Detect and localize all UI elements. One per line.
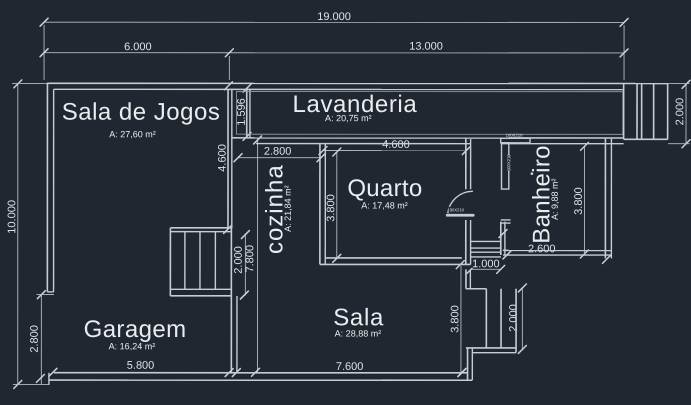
svg-text:10.000: 10.000 [6, 200, 18, 234]
svg-text:A: 9,88 m²: A: 9,88 m² [550, 179, 560, 221]
svg-text:7.600: 7.600 [336, 361, 364, 373]
svg-text:3.800: 3.800 [573, 187, 585, 215]
svg-text:Garagem: Garagem [84, 316, 187, 343]
svg-text:A: 27,60 m²: A: 27,60 m² [109, 129, 156, 139]
svg-text:Sala: Sala [333, 304, 384, 331]
svg-text:3.800: 3.800 [449, 305, 461, 333]
svg-text:4.600: 4.600 [217, 144, 229, 172]
svg-text:2.800: 2.800 [29, 325, 41, 353]
svg-text:2.000: 2.000 [674, 98, 686, 126]
svg-text:4.600: 4.600 [382, 139, 410, 151]
svg-text:2.800: 2.800 [264, 146, 292, 158]
svg-text:80X210: 80X210 [450, 207, 465, 212]
svg-text:2.000: 2.000 [233, 246, 245, 274]
svg-text:7.800: 7.800 [244, 245, 256, 273]
svg-text:100X210: 100X210 [506, 154, 511, 171]
svg-text:Quarto: Quarto [347, 175, 422, 202]
svg-text:6.000: 6.000 [124, 41, 152, 53]
svg-text:A: 17,48 m²: A: 17,48 m² [361, 201, 408, 211]
svg-text:5.800: 5.800 [127, 360, 155, 372]
svg-text:1.000: 1.000 [472, 258, 500, 270]
svg-text:2.000: 2.000 [508, 304, 520, 332]
svg-text:13.000: 13.000 [409, 41, 443, 53]
svg-text:A: 28,88 m²: A: 28,88 m² [335, 328, 382, 338]
svg-text:A: 21,84 m²: A: 21,84 m² [283, 185, 293, 232]
svg-text:19.000: 19.000 [317, 11, 351, 23]
svg-text:A: 16,24 m²: A: 16,24 m² [109, 341, 156, 351]
svg-text:100X210: 100X210 [506, 133, 523, 138]
svg-text:A: 20,75 m²: A: 20,75 m² [325, 113, 372, 123]
svg-text:Sala de Jogos: Sala de Jogos [62, 99, 221, 126]
svg-text:2.600: 2.600 [528, 243, 556, 255]
svg-text:3.800: 3.800 [325, 194, 337, 222]
